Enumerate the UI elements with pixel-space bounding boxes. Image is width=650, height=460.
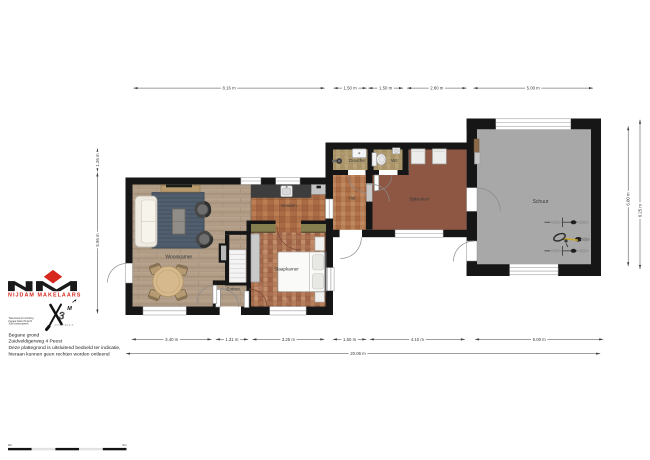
- svg-text:5m: 5m: [122, 443, 127, 447]
- svg-text:2.80 m: 2.80 m: [430, 86, 444, 91]
- svg-text:6.00 m: 6.00 m: [626, 192, 631, 206]
- svg-text:Entree: Entree: [226, 287, 240, 292]
- svg-text:3: 3: [59, 311, 65, 322]
- svg-text:8.16 m: 8.16 m: [223, 86, 237, 91]
- svg-text:Deze plattegrond is uitsluiten: Deze plattegrond is uitsluitend bedoeld …: [9, 345, 121, 351]
- svg-text:X3M ontwerpwerk: X3M ontwerpwerk: [9, 323, 30, 326]
- svg-text:3.40 m: 3.40 m: [165, 337, 179, 342]
- svg-text:NIJDAM MAKELAARS: NIJDAM MAKELAARS: [8, 292, 81, 298]
- svg-text:1.31 m: 1.31 m: [225, 337, 239, 342]
- svg-text:0m: 0m: [8, 443, 13, 447]
- svg-text:Wc: Wc: [391, 158, 398, 163]
- svg-text:Begane grond: Begane grond: [9, 332, 40, 338]
- svg-text:Woonkamer: Woonkamer: [165, 254, 192, 260]
- svg-text:Schuur: Schuur: [533, 199, 549, 205]
- svg-text:M: M: [67, 306, 72, 312]
- svg-text:Douche: Douche: [349, 158, 365, 163]
- svg-text:5.00 m: 5.00 m: [533, 337, 547, 342]
- svg-text:1.50 m: 1.50 m: [344, 86, 358, 91]
- svg-text:1.50 m: 1.50 m: [343, 337, 357, 342]
- svg-text:Slaapkamer: Slaapkamer: [274, 267, 299, 272]
- svg-text:1.50 m: 1.50 m: [379, 86, 393, 91]
- svg-text:Keuken: Keuken: [281, 203, 297, 208]
- svg-text:6.25 m: 6.25 m: [638, 204, 643, 218]
- svg-text:Bijkeuken: Bijkeuken: [410, 197, 430, 202]
- svg-text:5.00 m: 5.00 m: [527, 86, 541, 91]
- svg-text:1.26 m: 1.26 m: [95, 153, 100, 167]
- svg-text:Zuidveldigerweg 4 Peest: Zuidveldigerweg 4 Peest: [9, 339, 63, 345]
- svg-text:5.96 m: 5.96 m: [95, 233, 100, 247]
- svg-text:hieraan kunnen geen rechten wo: hieraan kunnen geen rechten worden ontle…: [9, 351, 110, 357]
- svg-text:o n t w e r p w e r k: o n t w e r p w e r k: [55, 324, 74, 327]
- svg-text:3.25 m: 3.25 m: [282, 337, 296, 342]
- svg-text:4.10 m: 4.10 m: [411, 337, 425, 342]
- svg-text:Hal: Hal: [349, 196, 356, 201]
- svg-text:20.06 m: 20.06 m: [350, 351, 366, 356]
